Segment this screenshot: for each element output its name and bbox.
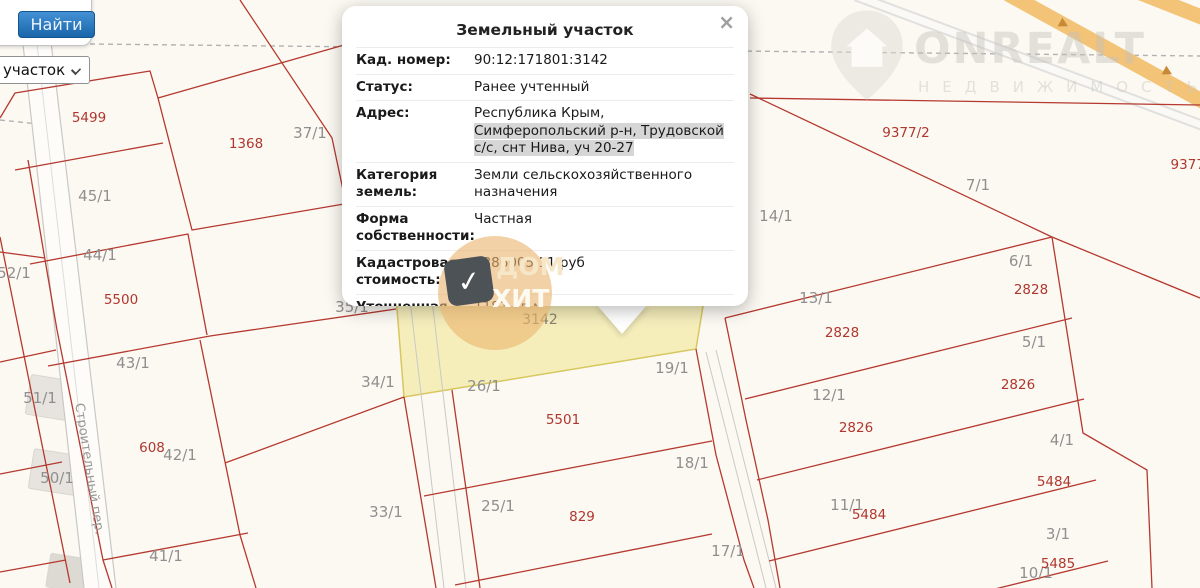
object-type-select[interactable]: участок [0,56,90,84]
popup-row-label: Форма собственности: [356,211,470,246]
popup-row-value: 1386005.11 руб [470,255,734,290]
popup-row-value: Частная [470,211,734,246]
popup-row-label: Кадастровая стоимость: [356,255,470,290]
popup-rows: Кад. номер:90:12:171801:3142Статус:Ранее… [356,47,734,306]
popup-row-label: Уточненная площадь: [356,299,470,306]
popup-row: Форма собственности:Частная [356,206,734,250]
popup-row-value: Республика Крым, Симферопольский р-н, Тр… [470,105,734,158]
road-stroitelny [18,0,116,588]
close-icon[interactable]: × [718,12,735,32]
popup-row-value: Земли сельскохозяйственного назначения [470,167,734,202]
value-text: Республика Крым, [474,105,604,121]
value-text: Земли сельскохозяйственного назначения [474,167,692,201]
value-text: Частная [474,211,532,227]
value-text: Ранее учтенный [474,79,589,95]
selected-parcel-polygon[interactable] [396,296,704,397]
value-highlighted-text: Симферопольский р-н, Трудовской с/с, снт… [474,123,724,157]
popup-row-label: Кад. номер: [356,52,470,70]
chevron-down-icon [71,65,81,75]
popup-row: Статус:Ранее учтенный [356,74,734,101]
popup-tail [596,304,648,334]
value-text: 90:12:171801:3142 [474,52,608,68]
parcel-info-popup: × Земельный участок Кад. номер:90:12:171… [342,6,748,306]
cadastral-map-app: ONREALT НЕДВИЖИМОСТЬ 45/137/152/144/143/… [0,0,1200,588]
popup-row: Адрес:Республика Крым, Симферопольский р… [356,100,734,162]
popup-row: Кад. номер:90:12:171801:3142 [356,47,734,74]
popup-row-label: Категория земель: [356,167,470,202]
popup-title: Земельный участок [356,21,734,39]
find-button[interactable]: Найти [18,11,95,38]
popup-row: Кадастровая стоимость:1386005.11 руб [356,250,734,294]
popup-row-value: 1181 кв.м [470,299,734,306]
value-text: 1386005.11 руб [474,255,585,271]
popup-row-value: 90:12:171801:3142 [470,52,734,70]
popup-row-label: Адрес: [356,105,470,158]
value-text: 1181 кв.м [474,299,543,306]
popup-row: Уточненная площадь:1181 кв.м [356,294,734,306]
popup-row-label: Статус: [356,79,470,97]
popup-row: Категория земель:Земли сельскохозяйствен… [356,162,734,206]
select-value: участок [3,61,65,79]
popup-row-value: Ранее учтенный [470,79,734,97]
